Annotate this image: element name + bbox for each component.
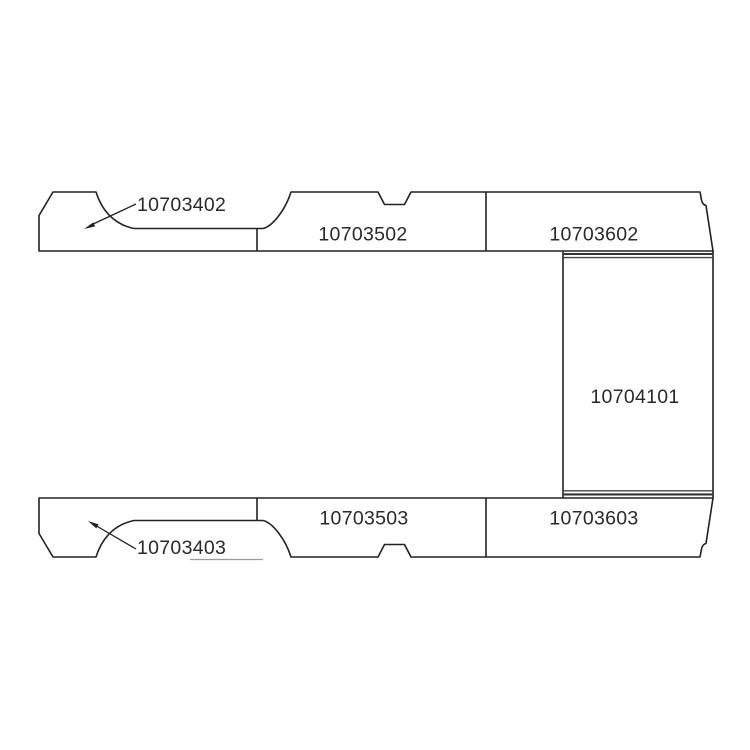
- parts-diagram-canvas: 10703402 10703502 10703602 10704101 1070…: [0, 0, 750, 750]
- top-left-leader-line: [90, 204, 136, 226]
- part-label-center-right: 10704101: [590, 386, 679, 408]
- diagram-stage: 10703402 10703502 10703602 10704101 1070…: [0, 0, 750, 750]
- part-label-top-left: 10703402: [137, 194, 226, 216]
- top-left-leader-arrowhead: [84, 222, 95, 229]
- bottom-left-leader-arrowhead: [88, 521, 99, 528]
- part-label-bottom-left: 10703403: [137, 537, 226, 559]
- part-label-bottom-right: 10703603: [549, 508, 638, 530]
- part-label-top-right: 10703602: [549, 224, 638, 246]
- part-label-top-middle: 10703502: [318, 224, 407, 246]
- part-label-bottom-middle: 10703503: [319, 508, 408, 530]
